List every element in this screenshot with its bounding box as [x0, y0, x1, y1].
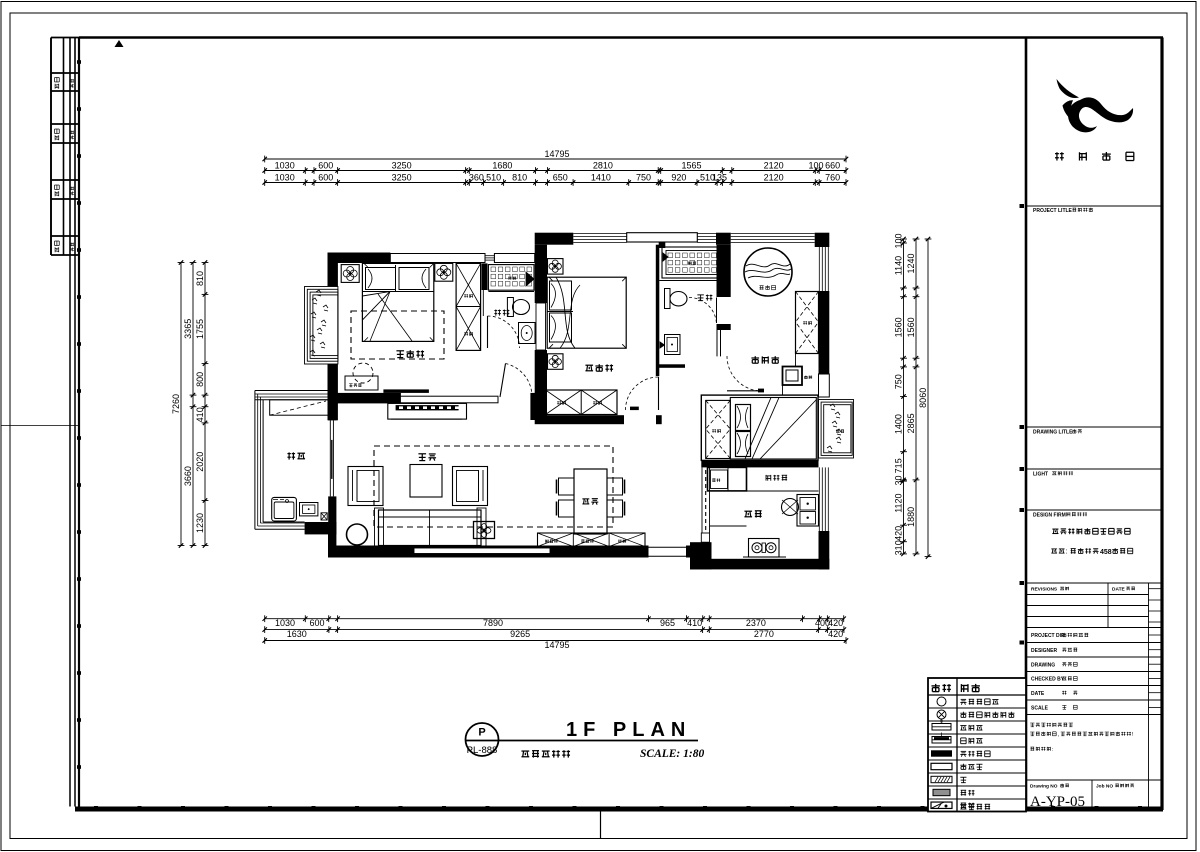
svg-text:DATE: DATE	[1112, 587, 1126, 593]
svg-text:1400: 1400	[893, 414, 903, 434]
svg-text:1565: 1565	[681, 160, 701, 170]
svg-text:715: 715	[893, 458, 903, 473]
svg-text:1230: 1230	[195, 513, 205, 533]
svg-text:360: 360	[469, 172, 484, 182]
svg-text:PROJECT DIR: PROJECT DIR	[1031, 633, 1065, 639]
svg-text:458: 458	[1100, 549, 1112, 556]
svg-text:1560: 1560	[893, 317, 903, 337]
svg-text:410: 410	[687, 618, 702, 628]
svg-text:DRAWING LITLE: DRAWING LITLE	[1033, 430, 1073, 436]
svg-text:1030: 1030	[275, 172, 295, 182]
svg-text:DESIGNER: DESIGNER	[1031, 648, 1058, 654]
svg-text:3365: 3365	[183, 319, 193, 339]
svg-text:2370: 2370	[746, 618, 766, 628]
svg-text:8060: 8060	[918, 388, 928, 408]
svg-text:1F PLAN: 1F PLAN	[566, 719, 691, 741]
svg-text:2770: 2770	[754, 629, 774, 639]
svg-text:14795: 14795	[544, 640, 569, 650]
svg-text:DESIGN FIRM: DESIGN FIRM	[1033, 513, 1066, 519]
svg-text:600: 600	[318, 160, 333, 170]
svg-text:2810: 2810	[593, 160, 613, 170]
svg-text:420: 420	[893, 526, 903, 541]
svg-text:SCALE: 1:80: SCALE: 1:80	[640, 748, 704, 760]
svg-text:1240: 1240	[906, 253, 916, 273]
svg-text:1120: 1120	[893, 493, 903, 512]
svg-text:1560: 1560	[906, 317, 916, 337]
svg-text:410: 410	[195, 407, 205, 422]
svg-text::: :	[1066, 549, 1068, 556]
svg-text:P: P	[478, 727, 485, 739]
svg-text:9265: 9265	[510, 629, 530, 639]
svg-text:100: 100	[893, 233, 903, 248]
svg-text:DATE: DATE	[1031, 691, 1045, 697]
svg-text:1140: 1140	[893, 256, 903, 275]
svg-text:420: 420	[828, 629, 843, 639]
svg-text:REVISIONS: REVISIONS	[1031, 587, 1058, 593]
svg-text:760: 760	[825, 172, 840, 182]
svg-text:810: 810	[195, 271, 205, 286]
svg-text:3660: 3660	[183, 466, 193, 486]
svg-text:14795: 14795	[544, 149, 569, 159]
svg-text:PROJECT LITLE: PROJECT LITLE	[1033, 208, 1073, 214]
svg-text:965: 965	[660, 618, 675, 628]
svg-text:920: 920	[671, 172, 686, 182]
svg-text:3250: 3250	[392, 172, 412, 182]
svg-text:1030: 1030	[275, 160, 295, 170]
svg-text:800: 800	[195, 372, 205, 387]
svg-text:A-YP-05: A-YP-05	[1030, 794, 1085, 810]
svg-text:1755: 1755	[195, 319, 205, 339]
svg-text:Drawing NO: Drawing NO	[1030, 784, 1058, 790]
svg-text:2020: 2020	[195, 452, 205, 472]
svg-text:1680: 1680	[492, 160, 512, 170]
svg-text:810: 810	[512, 172, 527, 182]
svg-text:650: 650	[553, 172, 568, 182]
svg-text:7260: 7260	[171, 394, 181, 414]
svg-text:LIGHT: LIGHT	[1033, 472, 1048, 478]
svg-text:750: 750	[636, 172, 651, 182]
svg-text:100: 100	[808, 160, 823, 170]
svg-text:135: 135	[712, 172, 727, 182]
svg-text:1630: 1630	[287, 629, 307, 639]
svg-text:7890: 7890	[483, 618, 503, 628]
svg-text:1410: 1410	[591, 172, 611, 182]
svg-text:1880: 1880	[906, 507, 916, 527]
svg-text:600: 600	[318, 172, 333, 182]
svg-text:310: 310	[893, 540, 903, 555]
svg-text:660: 660	[825, 160, 840, 170]
svg-text:3250: 3250	[392, 160, 412, 170]
svg-text:2120: 2120	[764, 172, 784, 182]
svg-text:PL-888: PL-888	[467, 745, 498, 756]
svg-text:2865: 2865	[906, 413, 916, 433]
svg-text:420: 420	[828, 618, 843, 628]
svg-text:CHECKED BY: CHECKED BY	[1031, 677, 1065, 683]
svg-text:510: 510	[486, 172, 501, 182]
svg-text:600: 600	[309, 618, 324, 628]
svg-text:Job NO: Job NO	[1096, 784, 1113, 790]
svg-text:SCALE: SCALE	[1031, 705, 1049, 711]
svg-text:DRAWING: DRAWING	[1031, 662, 1055, 668]
svg-text:30: 30	[893, 475, 903, 485]
svg-text:1030: 1030	[275, 618, 295, 628]
svg-text:2120: 2120	[764, 160, 784, 170]
svg-text:750: 750	[893, 374, 903, 389]
